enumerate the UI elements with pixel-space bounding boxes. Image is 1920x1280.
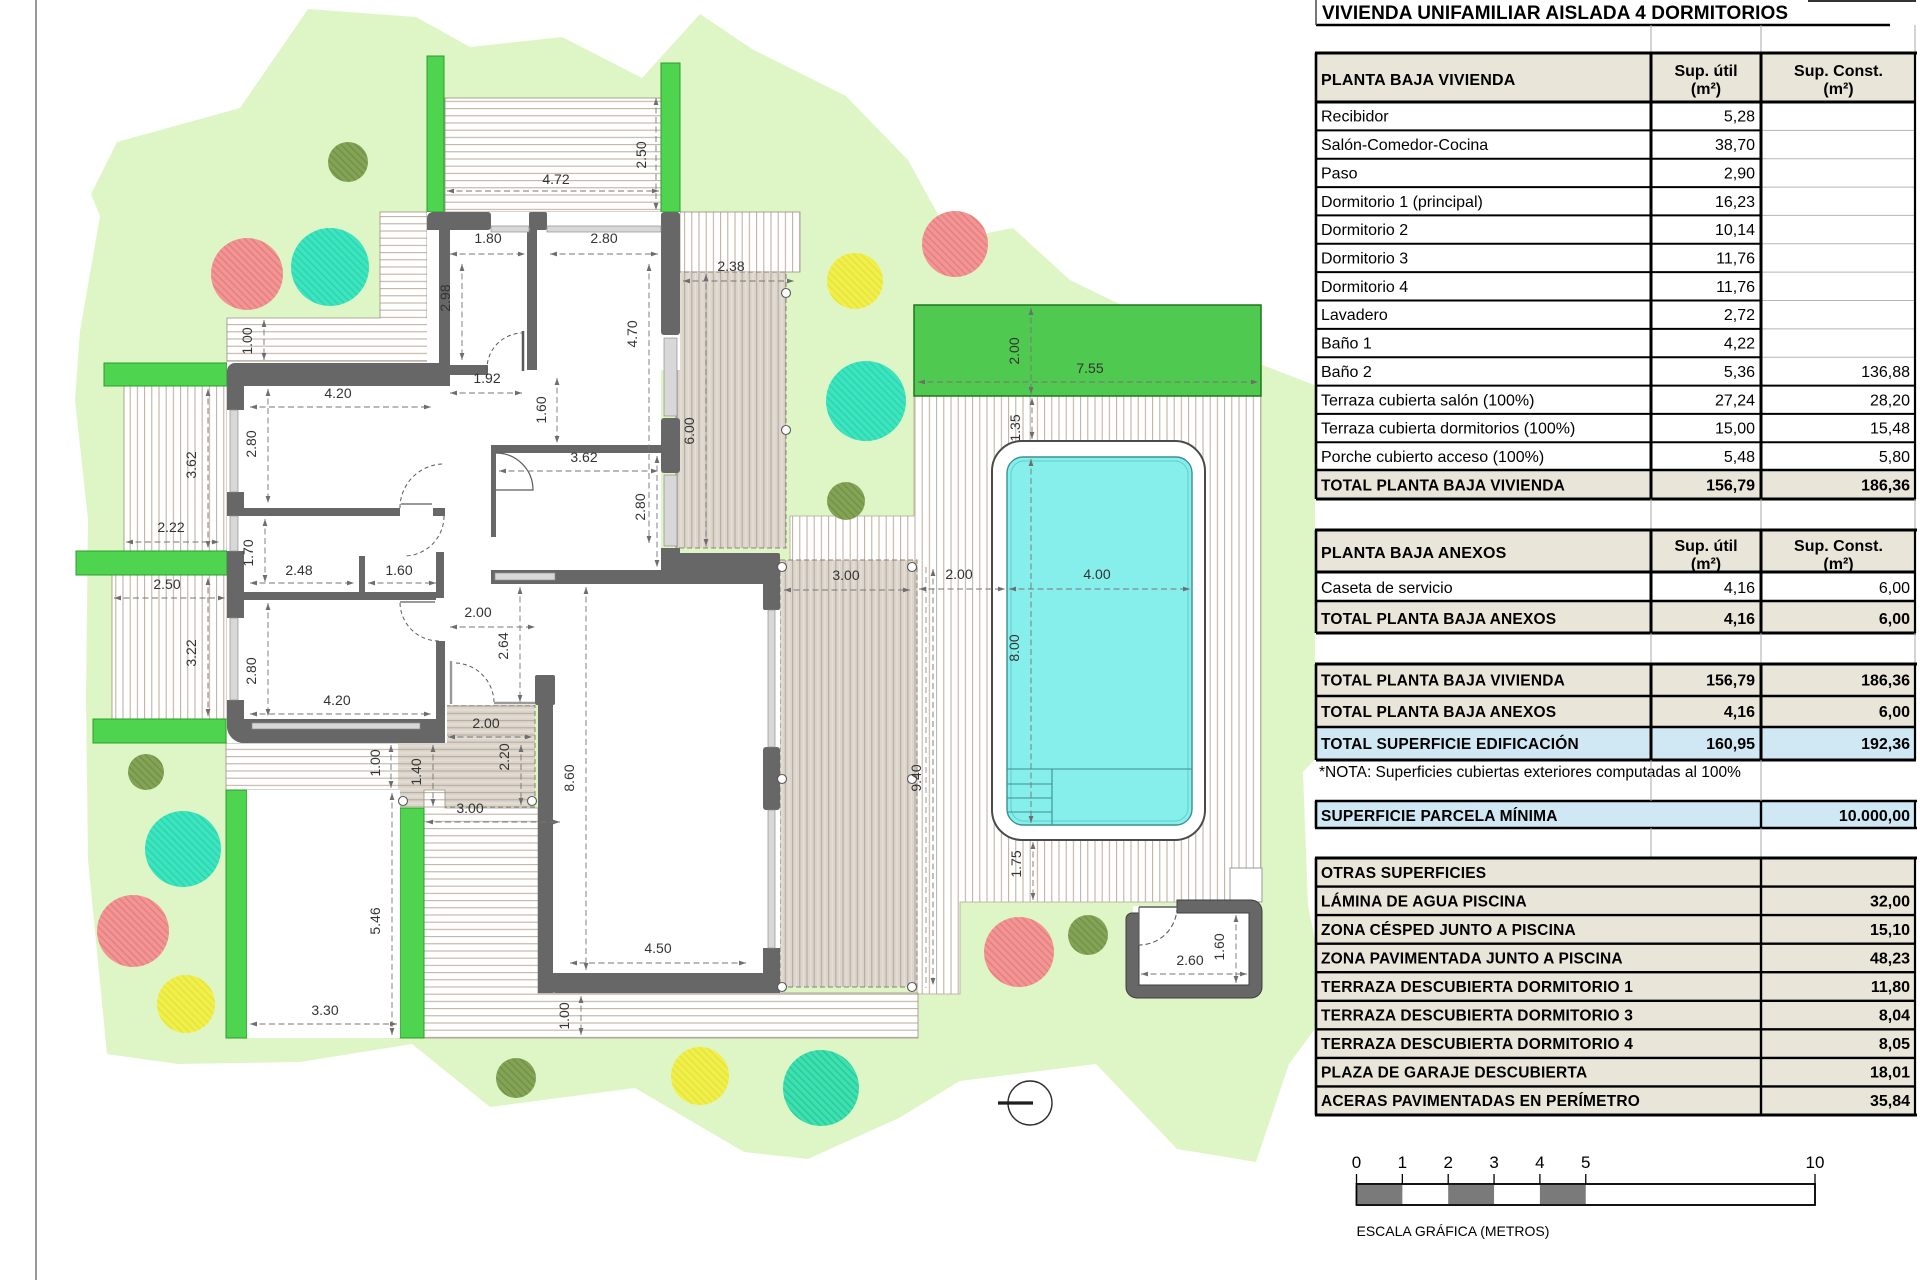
svg-text:2,90: 2,90	[1724, 165, 1755, 182]
svg-text:2.00: 2.00	[1006, 337, 1022, 364]
svg-text:11,80: 11,80	[1871, 979, 1910, 996]
svg-text:TERRAZA DESCUBIERTA DORMITORIO: TERRAZA DESCUBIERTA DORMITORIO 4	[1321, 1036, 1633, 1053]
svg-text:8.60: 8.60	[561, 764, 577, 791]
svg-text:4,16: 4,16	[1724, 611, 1755, 628]
svg-text:TOTAL PLANTA BAJA VIVIENDA: TOTAL PLANTA BAJA VIVIENDA	[1321, 477, 1565, 494]
svg-text:5: 5	[1581, 1153, 1590, 1172]
svg-text:3.00: 3.00	[832, 567, 859, 583]
svg-text:ACERAS PAVIMENTADAS EN PERÍMET: ACERAS PAVIMENTADAS EN PERÍMETRO	[1321, 1093, 1640, 1110]
svg-text:156,79: 156,79	[1706, 477, 1755, 494]
svg-text:4.20: 4.20	[324, 385, 351, 401]
svg-text:4.50: 4.50	[644, 940, 671, 956]
svg-text:2.80: 2.80	[243, 430, 259, 457]
svg-text:136,88: 136,88	[1861, 364, 1910, 381]
svg-text:11,76: 11,76	[1716, 279, 1755, 296]
svg-text:38,70: 38,70	[1715, 137, 1755, 154]
svg-text:Sup. Const.: Sup. Const.	[1794, 63, 1883, 80]
svg-text:ZONA CÉSPED JUNTO A PISCINA: ZONA CÉSPED JUNTO A PISCINA	[1321, 922, 1576, 939]
svg-text:11,76: 11,76	[1716, 250, 1755, 267]
svg-text:3.62: 3.62	[183, 451, 199, 478]
svg-text:1.70: 1.70	[240, 539, 256, 566]
svg-text:2.48: 2.48	[285, 562, 312, 578]
svg-text:186,36: 186,36	[1861, 673, 1910, 690]
svg-text:0: 0	[1352, 1153, 1361, 1172]
svg-text:2.80: 2.80	[590, 230, 617, 246]
svg-text:1: 1	[1398, 1153, 1407, 1172]
svg-text:Paso: Paso	[1321, 165, 1358, 182]
svg-text:Sup. útil: Sup. útil	[1674, 538, 1737, 555]
svg-text:Baño 2: Baño 2	[1321, 364, 1372, 381]
svg-text:TOTAL PLANTA BAJA ANEXOS: TOTAL PLANTA BAJA ANEXOS	[1321, 611, 1556, 628]
svg-text:2.64: 2.64	[495, 632, 511, 659]
svg-text:6,00: 6,00	[1879, 611, 1910, 628]
svg-text:28,20: 28,20	[1870, 392, 1910, 409]
svg-text:2.00: 2.00	[464, 604, 491, 620]
svg-text:4,16: 4,16	[1724, 704, 1755, 721]
svg-text:4: 4	[1535, 1153, 1544, 1172]
svg-text:Terraza cubierta dormitorios (: Terraza cubierta dormitorios (100%)	[1321, 421, 1575, 438]
svg-text:4,16: 4,16	[1724, 580, 1755, 597]
svg-text:3: 3	[1489, 1153, 1498, 1172]
svg-text:35,84: 35,84	[1870, 1093, 1910, 1110]
svg-text:Baño 1: Baño 1	[1321, 336, 1372, 353]
svg-text:4.00: 4.00	[1083, 566, 1110, 582]
svg-text:1.80: 1.80	[474, 230, 501, 246]
svg-text:SUPERFICIE PARCELA MÍNIMA: SUPERFICIE PARCELA MÍNIMA	[1321, 808, 1558, 825]
svg-text:2.50: 2.50	[153, 576, 180, 592]
svg-text:2: 2	[1443, 1153, 1452, 1172]
svg-text:5,80: 5,80	[1879, 449, 1910, 466]
svg-text:Sup. Const.: Sup. Const.	[1794, 538, 1883, 555]
svg-text:27,24: 27,24	[1715, 392, 1755, 409]
svg-text:2.50: 2.50	[633, 141, 649, 168]
svg-text:VIVIENDA UNIFAMILIAR AISLADA 4: VIVIENDA UNIFAMILIAR AISLADA 4 DORMITORI…	[1322, 3, 1788, 24]
svg-text:OTRAS SUPERFICIES: OTRAS SUPERFICIES	[1321, 865, 1486, 882]
svg-text:18,01: 18,01	[1870, 1065, 1910, 1082]
svg-text:7.55: 7.55	[1076, 360, 1103, 376]
svg-text:TOTAL PLANTA BAJA ANEXOS: TOTAL PLANTA BAJA ANEXOS	[1321, 704, 1556, 721]
svg-text:5,36: 5,36	[1724, 364, 1755, 381]
svg-text:Dormitorio 1 (principal): Dormitorio 1 (principal)	[1321, 194, 1483, 211]
svg-text:2.22: 2.22	[157, 519, 184, 535]
svg-text:Sup. útil: Sup. útil	[1674, 63, 1737, 80]
svg-text:2.00: 2.00	[472, 715, 499, 731]
svg-text:9.40: 9.40	[908, 764, 924, 791]
svg-text:3.30: 3.30	[311, 1002, 338, 1018]
svg-text:4.20: 4.20	[323, 692, 350, 708]
svg-text:192,36: 192,36	[1861, 736, 1910, 753]
svg-text:8,04: 8,04	[1879, 1008, 1910, 1025]
svg-text:160,95: 160,95	[1706, 736, 1755, 753]
svg-text:*NOTA: Superficies cubiertas e: *NOTA: Superficies cubiertas exteriores …	[1319, 764, 1741, 781]
svg-text:186,36: 186,36	[1861, 477, 1910, 494]
svg-text:PLAZA DE GARAJE DESCUBIERTA: PLAZA DE GARAJE DESCUBIERTA	[1321, 1065, 1587, 1082]
svg-text:10.000,00: 10.000,00	[1839, 808, 1910, 825]
svg-text:2.80: 2.80	[243, 657, 259, 684]
svg-text:5,48: 5,48	[1724, 449, 1755, 466]
svg-text:8.00: 8.00	[1006, 634, 1022, 661]
svg-text:2.60: 2.60	[1176, 952, 1203, 968]
svg-text:3.62: 3.62	[570, 449, 597, 465]
svg-text:TOTAL PLANTA BAJA VIVIENDA: TOTAL PLANTA BAJA VIVIENDA	[1321, 673, 1565, 690]
svg-text:5.46: 5.46	[367, 907, 383, 934]
svg-text:TERRAZA DESCUBIERTA DORMITORIO: TERRAZA DESCUBIERTA DORMITORIO 3	[1321, 1008, 1633, 1025]
svg-text:Terraza cubierta salón (100%): Terraza cubierta salón (100%)	[1321, 392, 1534, 409]
svg-text:3.22: 3.22	[183, 639, 199, 666]
svg-text:6,00: 6,00	[1879, 580, 1910, 597]
svg-text:(m²): (m²)	[1691, 81, 1721, 98]
svg-text:6.00: 6.00	[681, 417, 697, 444]
svg-text:Dormitorio 3: Dormitorio 3	[1321, 250, 1408, 267]
svg-text:(m²): (m²)	[1823, 556, 1853, 573]
svg-text:15,00: 15,00	[1715, 421, 1755, 438]
svg-text:1.35: 1.35	[1007, 414, 1023, 441]
svg-text:1.00: 1.00	[367, 749, 383, 776]
svg-text:ZONA PAVIMENTADA JUNTO A PISCI: ZONA PAVIMENTADA JUNTO A PISCINA	[1321, 950, 1623, 967]
svg-text:32,00: 32,00	[1870, 893, 1910, 910]
svg-text:10,14: 10,14	[1715, 222, 1755, 239]
svg-text:Salón-Comedor-Cocina: Salón-Comedor-Cocina	[1321, 137, 1488, 154]
svg-text:ESCALA GRÁFICA (METROS): ESCALA GRÁFICA (METROS)	[1357, 1223, 1550, 1239]
svg-text:PLANTA BAJA ANEXOS: PLANTA BAJA ANEXOS	[1321, 545, 1507, 562]
svg-text:(m²): (m²)	[1691, 556, 1721, 573]
svg-text:LÁMINA DE AGUA PISCINA: LÁMINA DE AGUA PISCINA	[1321, 893, 1527, 910]
svg-text:10: 10	[1806, 1153, 1825, 1172]
svg-text:1.40: 1.40	[408, 758, 424, 785]
svg-text:1.60: 1.60	[385, 562, 412, 578]
svg-text:8,05: 8,05	[1879, 1036, 1910, 1053]
svg-text:Caseta de servicio: Caseta de servicio	[1321, 580, 1453, 597]
svg-text:1.92: 1.92	[473, 370, 500, 386]
svg-text:15,10: 15,10	[1870, 922, 1910, 939]
svg-text:TERRAZA DESCUBIERTA DORMITORIO: TERRAZA DESCUBIERTA DORMITORIO 1	[1321, 979, 1633, 996]
svg-text:5,28: 5,28	[1724, 109, 1755, 126]
svg-text:1.00: 1.00	[556, 1002, 572, 1029]
svg-text:Dormitorio 2: Dormitorio 2	[1321, 222, 1408, 239]
svg-text:PLANTA BAJA VIVIENDA: PLANTA BAJA VIVIENDA	[1321, 72, 1516, 89]
svg-text:4,22: 4,22	[1724, 336, 1755, 353]
svg-text:1.75: 1.75	[1008, 850, 1024, 877]
svg-text:1.00: 1.00	[239, 327, 255, 354]
svg-text:Lavadero: Lavadero	[1321, 307, 1388, 324]
svg-text:1.60: 1.60	[533, 396, 549, 423]
svg-text:Recibidor: Recibidor	[1321, 109, 1389, 126]
svg-text:Dormitorio 4: Dormitorio 4	[1321, 279, 1408, 296]
svg-text:156,79: 156,79	[1706, 673, 1755, 690]
svg-text:48,23: 48,23	[1870, 950, 1910, 967]
svg-text:4.72: 4.72	[542, 171, 569, 187]
svg-text:3.00: 3.00	[456, 800, 483, 816]
svg-text:2.20: 2.20	[496, 743, 512, 770]
svg-text:16,23: 16,23	[1715, 194, 1755, 211]
svg-text:4.70: 4.70	[624, 320, 640, 347]
svg-text:2.98: 2.98	[437, 284, 453, 311]
svg-text:TOTAL SUPERFICIE EDIFICACIÓN: TOTAL SUPERFICIE EDIFICACIÓN	[1321, 735, 1579, 753]
svg-text:2.38: 2.38	[717, 258, 744, 274]
svg-text:2.80: 2.80	[632, 493, 648, 520]
svg-text:2.00: 2.00	[945, 566, 972, 582]
svg-text:2,72: 2,72	[1724, 307, 1755, 324]
svg-text:15,48: 15,48	[1870, 421, 1910, 438]
svg-text:Porche cubierto acceso (100%): Porche cubierto acceso (100%)	[1321, 449, 1544, 466]
svg-text:6,00: 6,00	[1879, 704, 1910, 721]
svg-text:(m²): (m²)	[1823, 81, 1853, 98]
svg-text:1.60: 1.60	[1211, 933, 1227, 960]
